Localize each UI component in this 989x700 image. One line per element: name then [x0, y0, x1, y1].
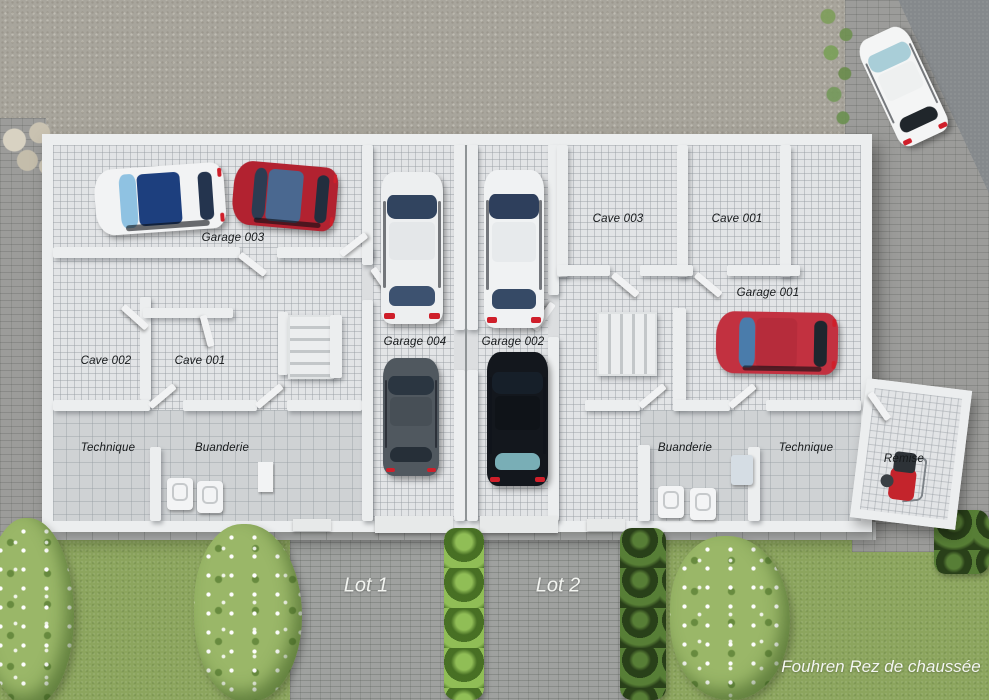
- taillight: [427, 468, 437, 473]
- washing-machine: [658, 486, 684, 518]
- staircase-lot2: [597, 312, 657, 376]
- washing-machine: [167, 478, 193, 510]
- roof-glass: [265, 169, 304, 223]
- room-label-garage-004: Garage 004: [384, 336, 447, 348]
- interior-wall: [53, 400, 150, 411]
- room-label-technique-lot2: Technique: [779, 442, 833, 454]
- room-label-remise: Remise: [884, 453, 924, 465]
- interior-wall: [330, 315, 342, 378]
- windshield: [489, 194, 538, 219]
- rear-window: [389, 286, 435, 306]
- car-roof: [389, 222, 435, 260]
- interior-wall: [362, 145, 373, 265]
- interior-wall: [557, 145, 568, 277]
- rear-window: [390, 447, 431, 462]
- car-red-suv-garage-001: [715, 311, 838, 375]
- interior-wall: [673, 400, 730, 411]
- car-white-coupe-garage-003: [93, 162, 227, 237]
- roof-glass: [136, 171, 182, 227]
- taillight: [216, 168, 221, 178]
- windshield: [387, 195, 438, 219]
- room-label-garage-002: Garage 002: [482, 336, 545, 348]
- car-roof: [495, 396, 540, 430]
- interior-wall: [585, 400, 640, 411]
- room-label-buanderie-lot1: Buanderie: [195, 442, 249, 454]
- room-label-garage-001: Garage 001: [737, 287, 800, 299]
- interior-wall: [183, 400, 257, 411]
- car-roof: [390, 397, 431, 427]
- driveway-lot2: [478, 536, 626, 700]
- taillight: [535, 477, 545, 482]
- car-grey-sedan-garage-004: [383, 358, 439, 476]
- interior-wall: [454, 145, 465, 330]
- driveway-lot1: [290, 536, 454, 700]
- interior-wall: [277, 247, 373, 258]
- interior-wall: [454, 370, 465, 521]
- door-threshold: [587, 519, 625, 531]
- taillight: [429, 313, 440, 319]
- car-roof: [756, 318, 797, 368]
- interior-wall: [548, 337, 559, 521]
- taillight: [831, 361, 835, 370]
- interior-wall: [677, 145, 688, 277]
- side-windows: [489, 377, 492, 453]
- interior-wall: [640, 265, 693, 276]
- interior-wall: [362, 300, 373, 521]
- ivy-plants: [810, 6, 870, 136]
- car-white-sedan-garage-004: [381, 172, 443, 324]
- side-windows: [539, 200, 542, 290]
- site-plan: Garage 003 Cave 002 Cave 001 Technique B…: [0, 0, 989, 700]
- rear-window: [813, 321, 827, 367]
- wall-panel: [258, 462, 273, 492]
- room-label-cave-003: Cave 003: [593, 213, 644, 225]
- car-red-hatchback-garage-003: [230, 160, 339, 233]
- car-black-suv-garage-002: [487, 352, 548, 486]
- interior-wall: [780, 145, 791, 277]
- taillight: [490, 477, 500, 482]
- interior-wall: [143, 308, 233, 318]
- car-white-sedan-garage-002: [484, 170, 544, 328]
- washing-machine: [690, 488, 716, 520]
- windshield: [388, 376, 434, 395]
- taillight: [487, 317, 497, 323]
- washing-machine: [197, 481, 223, 513]
- rear-window: [495, 453, 540, 470]
- room-label-cave-001-lot2: Cave 001: [712, 213, 763, 225]
- taillight: [220, 212, 225, 222]
- windshield: [739, 317, 756, 368]
- room-label-garage-003: Garage 003: [202, 232, 265, 244]
- room-label-cave-002: Cave 002: [81, 355, 132, 367]
- interior-wall: [150, 447, 161, 521]
- boiler-unit: [731, 455, 753, 485]
- taillight: [531, 317, 541, 323]
- side-windows: [438, 201, 441, 288]
- windshield: [492, 372, 542, 393]
- lot-label-2: Lot 2: [536, 575, 580, 598]
- room-label-cave-001-lot1: Cave 001: [175, 355, 226, 367]
- interior-wall: [278, 312, 288, 375]
- interior-wall: [53, 247, 240, 258]
- paver-strip-left: [0, 118, 46, 548]
- car-roof: [492, 222, 536, 262]
- interior-wall: [287, 400, 362, 411]
- interior-wall: [467, 145, 478, 330]
- interior-wall: [766, 400, 861, 411]
- flower-bush-right: [670, 536, 790, 700]
- taillight: [384, 313, 395, 319]
- lot-label-1: Lot 1: [344, 575, 388, 598]
- taillight: [832, 319, 836, 328]
- plan-caption: Fouhren Rez de chaussée: [781, 657, 980, 677]
- hedge-divider-2: [620, 528, 666, 700]
- interior-wall: [557, 265, 610, 276]
- rear-window: [492, 289, 536, 310]
- hedge-divider-1: [444, 528, 484, 700]
- interior-wall: [727, 265, 800, 276]
- party-wall-seam: [465, 145, 467, 521]
- staircase-lot1: [288, 315, 334, 379]
- garage-door-sill: [480, 516, 558, 533]
- garage-door-sill: [375, 516, 453, 533]
- room-label-buanderie-lot2: Buanderie: [658, 442, 712, 454]
- side-windows: [435, 380, 438, 447]
- side-windows: [543, 377, 546, 453]
- interior-wall: [638, 445, 650, 521]
- door-threshold: [293, 519, 331, 531]
- side-windows: [383, 201, 386, 288]
- taillight: [386, 468, 396, 473]
- side-windows: [486, 200, 489, 290]
- room-label-technique-lot1: Technique: [81, 442, 135, 454]
- interior-wall: [673, 308, 686, 407]
- interior-wall: [467, 370, 478, 521]
